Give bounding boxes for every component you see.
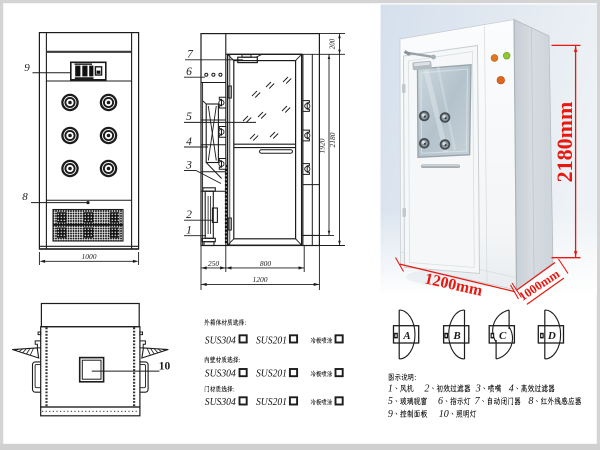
svg-text:D: D [547,330,556,342]
svg-text:1: 1 [388,384,393,395]
svg-text:SUS201: SUS201 [256,369,287,380]
svg-text:2180mm: 2180mm [552,102,577,183]
svg-text:9: 9 [24,62,30,74]
svg-text:2: 2 [186,209,192,221]
svg-text:6: 6 [438,396,443,407]
svg-text:1: 1 [186,225,192,237]
svg-text:6: 6 [186,66,192,78]
svg-text:200: 200 [329,38,337,49]
svg-text:SUS304: SUS304 [205,335,237,346]
svg-text:1000: 1000 [82,252,97,261]
svg-text:10: 10 [439,409,449,420]
svg-text:3: 3 [185,159,192,171]
svg-text:8: 8 [22,191,28,203]
svg-text:2180: 2180 [328,132,337,147]
svg-text:250: 250 [208,259,220,268]
svg-text:3: 3 [475,384,481,395]
svg-text:4: 4 [186,136,192,148]
svg-text:SUS304: SUS304 [205,369,237,380]
svg-text:800: 800 [260,259,272,268]
svg-text:A: A [402,330,410,342]
svg-text:SUS201: SUS201 [256,397,287,408]
svg-text:5: 5 [186,111,192,123]
svg-text:SUS201: SUS201 [256,335,287,346]
svg-text:SUS304: SUS304 [205,397,237,408]
svg-text:4: 4 [509,384,514,395]
svg-text:1200: 1200 [253,275,268,284]
svg-text:1920: 1920 [318,138,327,153]
svg-text:9: 9 [388,409,393,420]
svg-text:8: 8 [528,396,533,407]
svg-text:10: 10 [159,361,171,373]
svg-text:C: C [499,330,507,342]
svg-text:2: 2 [424,384,429,395]
svg-text:5: 5 [388,396,393,407]
svg-text:B: B [452,330,460,342]
